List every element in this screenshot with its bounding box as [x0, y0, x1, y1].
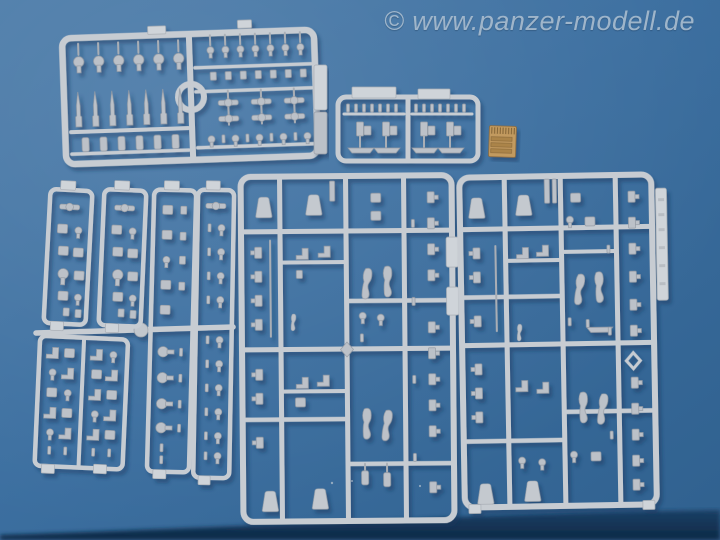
photo-canvas: © www.panzer-modell.de	[0, 0, 720, 540]
watermark: © www.panzer-modell.de	[384, 6, 714, 37]
flat-runner-tab	[314, 65, 327, 154]
sprue-photo-art	[0, 0, 720, 540]
photoetch-fret	[488, 126, 516, 158]
